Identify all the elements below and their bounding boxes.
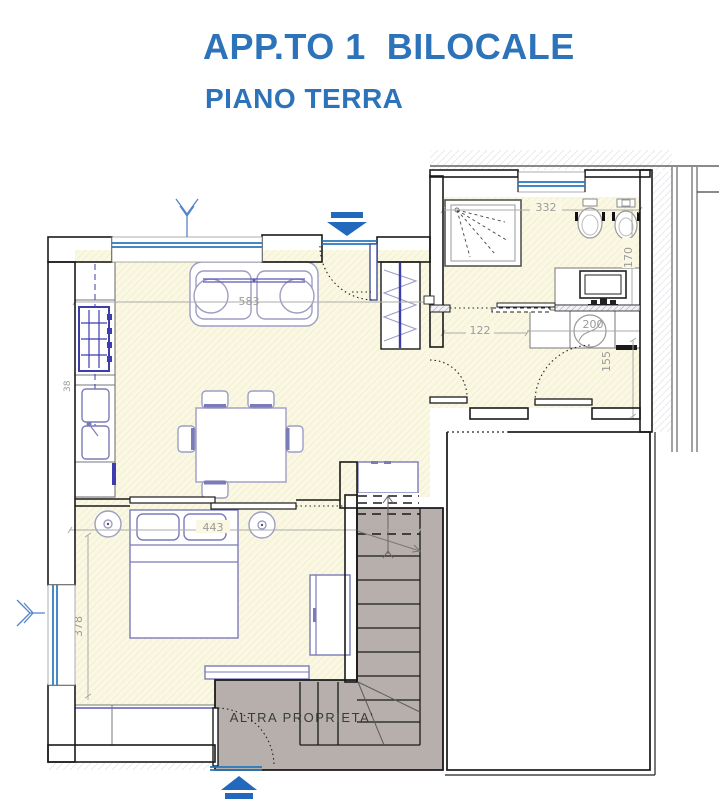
entrance-arrow-top [327,212,367,236]
plant-symbol-top [176,199,198,237]
dim-155: 155 [600,351,613,372]
dim-332: 332 [536,201,557,214]
washbasin [555,268,640,307]
dim-122: 122 [470,324,491,337]
sofa [190,262,318,326]
nightstand-left [95,511,121,537]
stove [79,307,112,371]
floor-plan-drawing: ALTRA PROPRIETA' [0,0,719,800]
dining-table [196,408,286,482]
floor-plan-page: APP.TO 1 BILOCALE PIANO TERRA [0,0,719,800]
kitchen-counter [75,262,116,497]
dresser [205,666,309,679]
window-bedroom [48,585,75,685]
nightstand-right [249,512,275,538]
dim-170: 170 [622,247,635,268]
dim-38: 38 [63,380,73,392]
other-property-label: ALTRA PROPRIETA' [230,710,374,725]
dim-583: 583 [239,295,260,308]
courtyard [445,432,655,775]
wardrobe [310,575,350,655]
pillow-left [137,514,179,540]
window-bathroom [518,170,585,192]
coat-closet [381,262,420,349]
window-living [112,237,262,262]
entrance-arrow-bottom [221,776,257,799]
bottom-cabinet [75,705,215,745]
plant-symbol-left [17,600,45,626]
dim-200: 200 [583,318,604,331]
dim-443: 443 [203,521,224,534]
sideboard [358,461,418,493]
